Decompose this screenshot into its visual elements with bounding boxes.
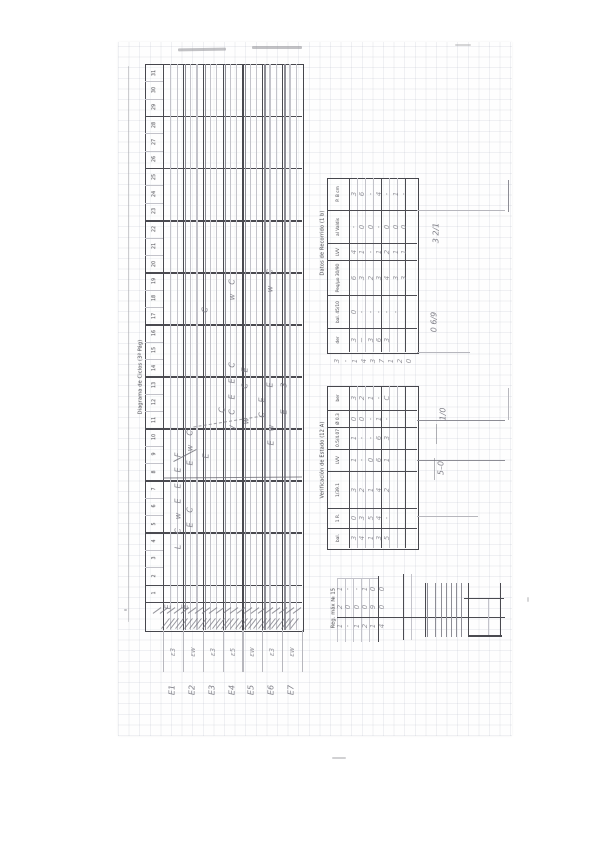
cell-value: 1 [367,536,375,540]
cell-value: 0 [358,416,366,420]
t3-cell-value: 0 [344,605,352,609]
step-number: 12 [151,399,157,405]
grid-mark: w [266,286,275,293]
table-line [425,583,426,637]
scanned-page: Diagrama de Ciclos (3ª Pág) 313029282726… [0,0,616,848]
t3-cell-value: 0 [361,605,369,609]
row-separator [145,238,163,239]
scan-smudge [332,757,346,759]
footnote-digit: 1 [387,359,395,363]
grid-mark: L [174,545,183,549]
column-boundary-double [225,64,226,630]
table-line [170,64,171,630]
header-label: LVV [336,456,341,464]
annotation-underline [434,458,435,480]
extension-line [417,420,505,421]
row-separator [145,411,163,412]
header-label: 1 R. [336,514,341,522]
cell-value: 1 [358,249,366,253]
cell-value: - [367,437,375,440]
band-line [327,328,417,329]
cell-value: 2 [367,275,375,279]
cell-value: 3 [392,275,400,279]
grid-mark: C [218,407,227,413]
step-number: 8 [151,470,157,473]
column-tail [223,630,224,672]
t3-column [403,574,404,640]
band-line [327,410,417,411]
extension-edge [508,388,509,420]
cell-value: 0 [383,224,391,228]
t3-cell-value: 1 [353,624,361,628]
grid-mark: E [241,367,250,372]
step-number: 4 [151,540,157,543]
cell-value: 6 [375,338,383,342]
cell-value: 4 [358,536,366,540]
footnote-digit: - [342,360,350,363]
row-separator [145,185,163,186]
cell-value: 6 [358,192,366,196]
cell-value: - [375,310,383,313]
cell-value: - [383,310,391,313]
header-label: P. B cm [336,186,341,202]
t3-bottom-line [468,635,502,637]
margin-annotation: 0 6/9 [430,312,439,333]
step-number: 25 [151,174,157,180]
step-number: 18 [151,295,157,301]
table-line [337,578,378,579]
t3-cell-value: - [344,625,352,628]
step-number: 3 [151,557,157,560]
cell-value: 0 [392,224,400,228]
cell-value: - [367,310,375,313]
row-separator [145,342,163,343]
annotation-underline [436,424,437,444]
column-label: E6 [267,685,276,695]
grid-mark: E [258,397,267,402]
margin-annotation: 1/0 [439,408,448,421]
table-line [236,64,237,630]
band-line [327,449,417,450]
step-number: 5 [151,522,157,525]
row-separator [145,307,163,308]
column-boundary-double [185,64,186,630]
table-line [190,64,191,630]
cell-value: 3 [358,275,366,279]
grid-mark: C [266,269,275,275]
t3-cluster-line [446,583,447,637]
cell-value: 3 [367,338,375,342]
row-separator [145,133,163,134]
row-separator [145,290,163,291]
t3-cell-value: 1 [336,624,344,628]
grid-mark: E [186,460,195,465]
column-label: E7 [287,685,296,695]
band-line [327,427,417,428]
step-number: 19 [151,278,157,284]
cell-value: 4 [383,275,391,279]
table-line [373,178,374,352]
table-line [289,64,290,630]
step-number: 30 [151,87,157,93]
cell-value: 1 [375,249,383,253]
grid-mark: C [228,362,237,368]
cell-value: 5 [383,536,391,540]
grid-mark: C [228,409,237,415]
cell-value: 6 [375,436,383,440]
band-line [327,243,417,244]
step-number: 20 [151,260,157,266]
row-separator [145,394,163,395]
band-line [327,260,417,261]
step-number: 17 [151,312,157,318]
t3-cell-value: 0 [353,605,361,609]
column-boundary-double [284,64,285,630]
footnote-digit: 1 [351,359,359,363]
table-line [365,178,366,352]
header-label: al Valdis [336,218,341,236]
step-number: 16 [151,330,157,336]
cell-value: - [383,193,391,196]
column-boundary-double [264,64,265,630]
footnote-digit: 7 [378,359,386,363]
column-boundary [183,64,184,630]
grid-mark: w [228,294,237,301]
t3-cell-value: 9 [369,605,377,609]
grid-mark: C [174,528,183,534]
grid-mark: C [241,383,250,389]
grid-mark: E [174,467,183,472]
header-label: 1/39.1 [336,483,341,497]
cell-value: 3 [350,396,358,400]
column-note: εw [288,647,296,657]
cell-value: 6 [350,275,358,279]
t3-cell-value: 1 [361,587,369,591]
column-boundary [203,64,204,630]
grid-mark: C [186,507,195,513]
data-table-2-title: Verificación de Estado (12 A) [319,422,325,499]
band-line [327,210,417,211]
header-label: LVV [336,248,341,256]
table-line [381,178,382,352]
column-boundary [242,64,243,630]
step-number: 28 [151,122,157,128]
row-separator [145,151,163,152]
cell-value: 0 [400,224,408,228]
column-label: E5 [247,685,256,695]
footnote-digit: 4 [360,359,368,363]
cell-value: - [392,310,400,313]
cell-value: 0 [358,224,366,228]
cell-value: - [358,459,366,462]
cell-value: 1 [367,396,375,400]
cell-value: 1 [392,192,400,196]
grid-mark: E [186,522,195,527]
extension-line [417,516,478,517]
cell-value: 3 [375,536,383,540]
number-column-line [163,64,164,630]
grid-mark: E [174,483,183,488]
table-line [468,583,469,637]
table-line [405,178,406,352]
cell-value: - [375,397,383,400]
cell-value: 6 [375,458,383,462]
column-note: ε5 [229,648,237,656]
step-number: 6 [151,505,157,508]
cell-value: 3 [350,536,358,540]
cell-value: ~ [358,337,366,343]
t3-cell-value: 2 [336,605,344,609]
t3-cell-value: 1 [336,587,344,591]
cell-value: 3 [350,487,358,491]
row-separator [145,498,163,499]
cell-value: C [383,396,391,401]
cell-value: 3 [383,338,391,342]
footnote-digit: 3 [369,359,377,363]
column-label: E4 [227,685,236,695]
cell-value: 4 [375,516,383,520]
column-note: εw [189,647,197,657]
cell-value: - [375,225,383,228]
extension-line [417,460,505,461]
cell-value: 1 [400,249,408,253]
header-label: ber [336,394,341,401]
column-tail [242,630,243,672]
column-tail [163,630,164,672]
cell-value: 4 [375,192,383,196]
t3-cell-value: - [353,588,361,591]
cell-value: - [350,225,358,228]
scan-speck [124,609,127,611]
grid-mark: w [267,425,276,432]
t3-cluster-line [441,583,442,637]
column-label: E3 [207,685,216,695]
step-number: 9 [151,453,157,456]
cell-value: 3 [375,275,383,279]
step-number: 24 [151,191,157,197]
header-label: Peq/μo 30/90 [336,263,341,292]
column-boundary-double [245,64,246,630]
table-line [464,598,504,599]
cell-value: - [367,417,375,420]
step-number: 23 [151,208,157,214]
step-number: 2 [151,574,157,577]
t3-cell-value: 4 [378,624,386,628]
grid-mark: E [266,382,275,387]
t3-cluster-line [456,583,457,637]
cell-value: 3 [358,516,366,520]
table-line [250,64,251,630]
table-line [397,178,398,352]
extension-edge [508,180,509,212]
column-label: E1 [167,685,176,695]
step-number: 31 [151,70,157,76]
cell-value: 2 [358,487,366,491]
header-label: der [336,336,341,343]
step-number: 21 [151,243,157,249]
t3-cell-value: 0 [378,605,386,609]
cell-value: 0 [350,309,358,313]
grid-mark: C [201,307,210,313]
row-separator [145,567,163,568]
cell-value: 0 [350,516,358,520]
table-line [488,598,489,637]
grid-mark: C [186,430,195,436]
grid-mark: E [228,394,237,399]
diagram-title: Diagrama de Ciclos (3ª Pág) [137,340,143,415]
band-line [327,471,417,472]
footnote-digit: 0 [405,359,413,363]
grid-mark: V [229,425,238,430]
column-boundary [262,64,263,630]
column-boundary [223,64,224,630]
column-tail [183,630,184,672]
grid-mark: C [228,279,237,285]
cell-value: 3 [350,338,358,342]
column-boundary-double [205,64,206,630]
cell-value: 0 [367,224,375,228]
cell-value: 3 [350,192,358,196]
step-number: 27 [151,139,157,145]
t3-cluster-line [461,583,462,637]
grid-mark: E [228,378,237,383]
footnote-digit: 2 [396,359,404,363]
column-note: ε3 [268,648,276,656]
cell-value: - [358,437,366,440]
column-note: ε3 [169,648,177,656]
table-line [500,583,501,637]
step-number: 1 [151,592,157,595]
column-tail [302,630,303,672]
column-note: εw [248,647,256,657]
cell-value: - [367,250,375,253]
cell-value: 3 [400,275,408,279]
scan-smudge [252,46,302,49]
row-separator [145,359,163,360]
table-line [216,64,217,630]
row-separator [145,446,163,447]
header-label: bal. 45/10 [336,301,341,323]
band-line [327,528,417,529]
t3-cluster-line [427,583,428,637]
header-label: bal. [336,534,341,542]
table-line [296,64,297,630]
cell-value: 5 [367,516,375,520]
extension-line [417,210,505,211]
cell-value: - [367,193,375,196]
cell-value: 1 [392,249,400,253]
cell-value: 0 [367,458,375,462]
grid-mark: E [202,453,211,458]
cell-value: - [383,417,391,420]
cell-value: 4 [350,249,358,253]
cell-value: 1 [367,487,375,491]
footnote-digit: 3 [333,359,341,363]
table-line [269,64,270,630]
table-line [411,574,412,640]
row-separator [145,203,163,204]
margin-annotation: 5–0 [437,461,446,475]
cell-value: 1 [350,458,358,462]
grid-mark: E [267,440,276,445]
t3-cell-value: 2 [361,624,369,628]
column-boundary [282,64,283,630]
t3-long-line [337,617,505,618]
table-line [210,64,211,630]
step-number: 26 [151,156,157,162]
column-tail [282,630,283,672]
t3-cell-value: - [344,588,352,591]
step-number: 10 [151,434,157,440]
extension-line [417,352,470,353]
cell-value: 3 [383,436,391,440]
margin-annotation: 3 2/1 [432,223,441,244]
table-line [357,178,358,352]
step-number: 13 [151,382,157,388]
row-separator [145,463,163,464]
header-label: Ø 0.3 [336,413,341,425]
table-line [196,64,197,630]
table-line [230,64,231,630]
grid-mark: E [174,498,183,503]
t3-cluster-line [451,583,452,637]
step-number: 7 [151,487,157,490]
grid-mark: E [280,409,289,414]
scan-smudge [455,44,471,46]
step-number: 22 [151,226,157,232]
t3-cell-value: 0 [378,587,386,591]
table-line [276,64,277,630]
t3-cell-value: 1 [369,624,377,628]
data-table-1-title: Datos de Recorrido (1 b) [319,210,325,275]
column-tail [262,630,263,672]
cell-value: 1 [350,436,358,440]
column-note: ε3 [209,648,217,656]
table-line [256,64,257,630]
header-label: 0.5/4.07 [336,429,341,447]
row-separator [145,550,163,551]
t3-cell-value: 0 [369,587,377,591]
column-label: E2 [187,685,196,695]
row-separator [145,81,163,82]
band-line [327,295,417,296]
grid-mark: 3 [280,382,289,387]
cell-value: 0 [350,416,358,420]
step-number: 14 [151,365,157,371]
cell-value: 2 [383,487,391,491]
table-line [389,178,390,352]
sheet-edge-line [128,66,129,622]
row-separator [145,99,163,100]
cell-value: 1 [383,458,391,462]
row-separator [145,515,163,516]
cell-value: - [400,193,408,196]
cell-value: 4 [375,487,383,491]
scan-speck [527,597,529,602]
step-number: 11 [151,417,157,423]
band-line [327,508,417,509]
t3-cluster-line [435,583,436,637]
cell-value: 2 [383,249,391,253]
cell-value: - [383,517,391,520]
cell-value: 1 [375,416,383,420]
row-separator [145,255,163,256]
cell-value: 2 [358,396,366,400]
step-number: 29 [151,104,157,110]
header-column-line [349,178,350,352]
cell-value: - [358,310,366,313]
step-number: 15 [151,347,157,353]
